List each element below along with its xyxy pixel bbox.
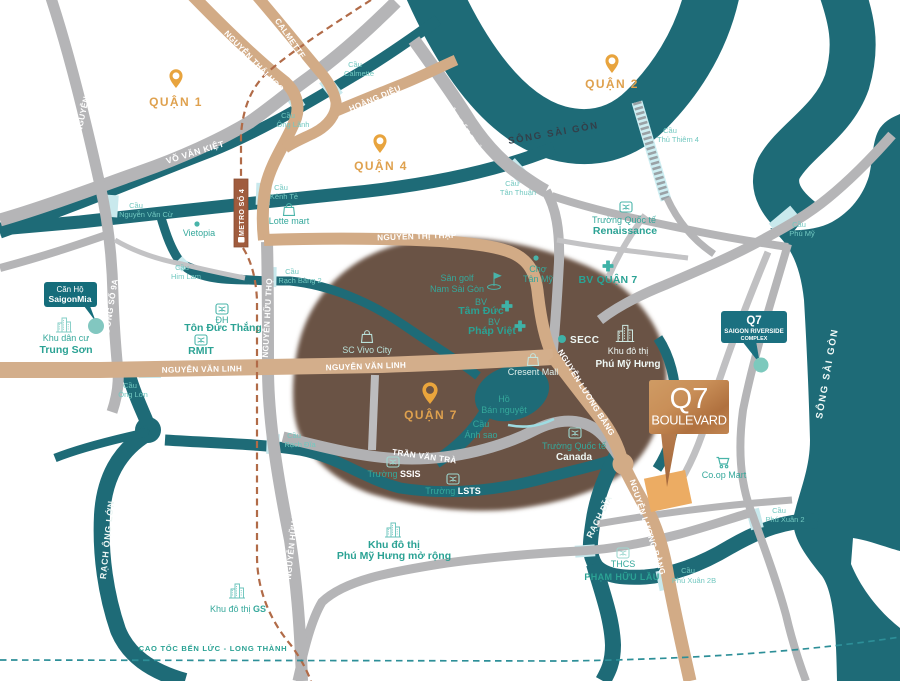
svg-text:Ông Lớn: Ông Lớn bbox=[118, 390, 148, 399]
svg-text:Sân golf: Sân golf bbox=[440, 273, 474, 283]
svg-text:THCS: THCS bbox=[611, 559, 636, 569]
svg-text:Cầu: Cầu bbox=[663, 126, 677, 135]
svg-text:Cầu: Cầu bbox=[175, 263, 189, 272]
svg-text:Hồ: Hồ bbox=[498, 394, 510, 404]
svg-text:Lotte mart: Lotte mart bbox=[269, 216, 310, 226]
svg-text:Cầu: Cầu bbox=[274, 183, 288, 192]
svg-text:Chợ: Chợ bbox=[529, 264, 547, 274]
svg-text:Tâm Đức: Tâm Đức bbox=[458, 305, 504, 317]
svg-text:Cầu: Cầu bbox=[772, 506, 786, 515]
svg-text:Trường LSTS: Trường LSTS bbox=[425, 486, 481, 496]
svg-text:Q7: Q7 bbox=[746, 315, 761, 327]
svg-text:Renaissance: Renaissance bbox=[593, 225, 657, 237]
svg-text:RMIT: RMIT bbox=[188, 345, 214, 357]
svg-text:Trung Sơn: Trung Sơn bbox=[40, 344, 93, 356]
svg-text:QUẬN 1: QUẬN 1 bbox=[149, 94, 203, 109]
svg-text:Rạch Đĩa: Rạch Đĩa bbox=[284, 440, 316, 449]
svg-text:Khu đô thị GS: Khu đô thị GS bbox=[210, 604, 266, 614]
svg-text:CAO TỐC BẾN LỨC - LONG THÀNH: CAO TỐC BẾN LỨC - LONG THÀNH bbox=[139, 643, 288, 653]
svg-text:Cầu: Cầu bbox=[505, 179, 519, 188]
svg-text:Phú Mỹ Hưng mở rộng: Phú Mỹ Hưng mở rộng bbox=[337, 550, 451, 562]
svg-text:Cầu: Cầu bbox=[473, 419, 490, 429]
svg-text:Phú Xuân 2B: Phú Xuân 2B bbox=[672, 576, 716, 585]
svg-text:Nam Sài Gòn: Nam Sài Gòn bbox=[430, 284, 484, 294]
svg-text:SaigonMia: SaigonMia bbox=[49, 294, 92, 304]
svg-text:Him Lam: Him Lam bbox=[171, 272, 201, 281]
svg-text:Ánh sao: Ánh sao bbox=[464, 430, 497, 440]
svg-text:Tôn Đức Thắng: Tôn Đức Thắng bbox=[184, 321, 262, 334]
svg-text:Phú Mỹ: Phú Mỹ bbox=[789, 229, 815, 238]
svg-text:Phú Xuân 2: Phú Xuân 2 bbox=[765, 515, 804, 524]
svg-text:Trường Quốc tế: Trường Quốc tế bbox=[542, 441, 606, 451]
svg-text:Cầu: Cầu bbox=[792, 220, 806, 229]
svg-text:Co.op Mart: Co.op Mart bbox=[702, 470, 747, 480]
svg-text:QUẬN 2: QUẬN 2 bbox=[585, 76, 639, 91]
svg-text:Q7: Q7 bbox=[670, 383, 709, 415]
svg-text:Ông Lãnh: Ông Lãnh bbox=[277, 120, 310, 129]
svg-text:Cầu: Cầu bbox=[348, 60, 362, 69]
svg-text:Calmette: Calmette bbox=[344, 69, 374, 78]
svg-text:Thủ Thiêm 4: Thủ Thiêm 4 bbox=[657, 135, 699, 144]
svg-text:Khu đô thị: Khu đô thị bbox=[608, 346, 649, 356]
svg-text:Trường SSIS: Trường SSIS bbox=[367, 469, 420, 479]
svg-text:BOULEVARD: BOULEVARD bbox=[651, 413, 726, 428]
svg-text:Kênh Tẻ: Kênh Tẻ bbox=[270, 192, 298, 201]
svg-text:Căn Hộ: Căn Hộ bbox=[56, 285, 84, 294]
svg-text:Cầu: Cầu bbox=[287, 431, 301, 440]
svg-text:Tân Thuận: Tân Thuận bbox=[500, 188, 536, 197]
svg-text:SAIGON RIVERSIDE: SAIGON RIVERSIDE bbox=[724, 328, 783, 335]
svg-text:Cresent Mall: Cresent Mall bbox=[508, 367, 559, 377]
svg-text:Pháp Việt: Pháp Việt bbox=[468, 325, 516, 337]
svg-text:QUẬN 7: QUẬN 7 bbox=[404, 407, 458, 422]
svg-text:Tân Mỹ: Tân Mỹ bbox=[523, 274, 554, 284]
svg-text:Cầu: Cầu bbox=[129, 201, 143, 210]
svg-text:Cầu: Cầu bbox=[681, 566, 695, 575]
svg-text:SECC: SECC bbox=[570, 335, 599, 346]
svg-text:Phú Mỹ Hưng: Phú Mỹ Hưng bbox=[595, 359, 660, 370]
svg-text:SC Vivo City: SC Vivo City bbox=[342, 345, 392, 355]
svg-text:Canada: Canada bbox=[556, 452, 593, 463]
svg-text:Vietopia: Vietopia bbox=[183, 228, 215, 238]
svg-text:Bán nguyệt: Bán nguyệt bbox=[481, 405, 527, 415]
svg-text:COMPLEX: COMPLEX bbox=[741, 336, 768, 342]
svg-text:PHẠM HỮU LẦU: PHẠM HỮU LẦU bbox=[584, 572, 659, 582]
svg-text:Cầu: Cầu bbox=[285, 267, 299, 276]
svg-text:QUẬN 4: QUẬN 4 bbox=[354, 158, 408, 173]
svg-text:Nguyễn Văn Cừ: Nguyễn Văn Cừ bbox=[119, 210, 173, 219]
svg-text:BV QUẬN 7: BV QUẬN 7 bbox=[579, 273, 638, 286]
svg-text:Khu dân cư: Khu dân cư bbox=[43, 333, 90, 343]
svg-text:Rạch Bàng 2: Rạch Bàng 2 bbox=[278, 276, 321, 285]
svg-text:Cầu: Cầu bbox=[281, 111, 295, 120]
svg-text:Cầu: Cầu bbox=[123, 381, 137, 390]
svg-text:Trường Quốc tế: Trường Quốc tế bbox=[592, 215, 656, 225]
